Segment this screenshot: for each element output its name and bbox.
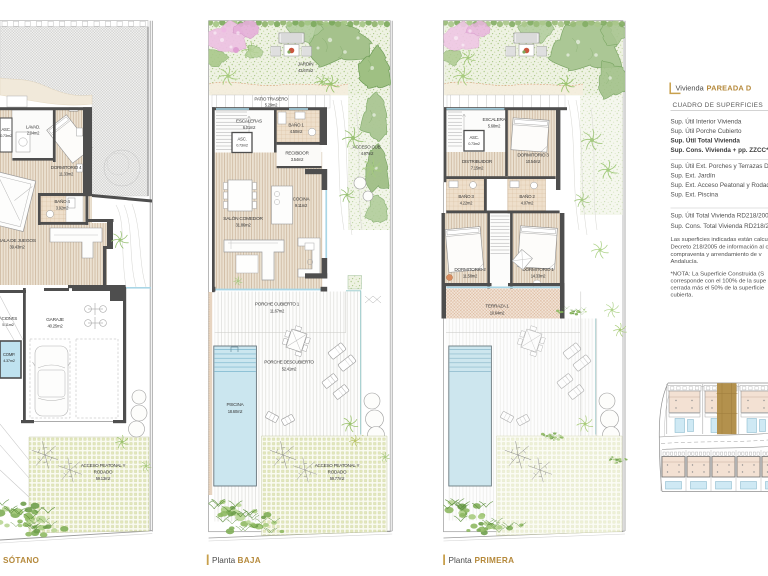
svg-text:2.04m2: 2.04m2: [27, 131, 40, 136]
svg-text:PORCHE DESCUBIERTO: PORCHE DESCUBIERTO: [264, 360, 314, 365]
svg-text:10.54m2: 10.54m2: [526, 159, 541, 164]
svg-text:BAÑO 1: BAÑO 1: [288, 122, 304, 128]
svg-text:Sup. Cons. Total Vivienda RD21: Sup. Cons. Total Vivienda RD218/2005: [671, 223, 768, 230]
svg-text:ESCALERA: ESCALERA: [482, 117, 506, 122]
svg-text:Planta: Planta: [212, 556, 236, 565]
svg-text:PATIO TRASERO: PATIO TRASERO: [254, 96, 288, 101]
svg-text:9.11m2: 9.11m2: [295, 203, 308, 208]
svg-text:Sup. Ext. Jardín: Sup. Ext. Jardín: [671, 173, 716, 180]
svg-text:PRIMERA: PRIMERA: [475, 556, 515, 565]
svg-text:6.01m2: 6.01m2: [243, 125, 256, 130]
svg-text:43.67m2: 43.67m2: [298, 68, 314, 73]
svg-text:Sup. Útil Interior Vivienda: Sup. Útil Interior Vivienda: [671, 117, 742, 126]
svg-text:Sup. Útil Porche Cubierto: Sup. Útil Porche Cubierto: [671, 126, 743, 135]
svg-text:Sup. Cons. Vivienda + pp. ZZCC: Sup. Cons. Vivienda + pp. ZZCC*: [671, 147, 768, 154]
svg-text:DORMITORIO 3: DORMITORIO 3: [517, 153, 549, 158]
svg-text:ASC.: ASC.: [1, 127, 10, 132]
svg-text:cubierta.: cubierta.: [671, 293, 694, 299]
svg-text:7.15m2: 7.15m2: [471, 166, 484, 171]
svg-text:BAÑO 3: BAÑO 3: [458, 193, 474, 199]
svg-text:compraventa y arrendamient: compraventa y arrendamiento de v: [671, 252, 762, 258]
svg-text:5.68m2: 5.68m2: [488, 124, 501, 129]
svg-text:PORCHE CUBIERTO 1: PORCHE CUBIERTO 1: [255, 302, 300, 307]
svg-text:Sup. Útil Total Vivienda RD218: Sup. Útil Total Vivienda RD218/2005: [671, 211, 768, 220]
svg-text:ASC.: ASC.: [237, 137, 246, 142]
svg-text:4.50m2: 4.50m2: [290, 129, 303, 134]
svg-text:5.29m2: 5.29m2: [265, 102, 278, 107]
svg-text:PISCINA: PISCINA: [226, 402, 244, 407]
svg-text:3.92m2: 3.92m2: [56, 206, 69, 211]
svg-text:4.37m2: 4.37m2: [3, 358, 15, 363]
svg-text:COMP.: COMP.: [3, 352, 15, 357]
svg-text:cerrada más el 50% de la: cerrada más el 50% de la superficie: [671, 286, 765, 292]
svg-text:Las superficies indicadas está: Las superficies indicadas están calculad…: [671, 237, 768, 243]
svg-text:DORMITORIO 1: DORMITORIO 1: [522, 267, 554, 272]
svg-text:RODADO: RODADO: [328, 470, 347, 475]
svg-text:BAJA: BAJA: [238, 556, 262, 565]
svg-text:4.07m2: 4.07m2: [521, 201, 534, 206]
svg-text:ACCESO PEATONAL Y: ACCESO PEATONAL Y: [315, 463, 360, 468]
svg-text:0.73m2: 0.73m2: [236, 143, 248, 148]
svg-text:SALA DE JUEGOS: SALA DE JUEGOS: [0, 238, 36, 244]
svg-text:52.41m2: 52.41m2: [282, 367, 297, 372]
svg-text:Vivienda: Vivienda: [676, 84, 705, 93]
svg-text:GARAJE: GARAJE: [46, 317, 64, 323]
svg-text:Planta: Planta: [449, 556, 473, 565]
svg-text:Sup. Útil Ext. Porches y Terra: Sup. Útil Ext. Porches y Terrazas Descub…: [671, 161, 768, 170]
svg-text:31.86m2: 31.86m2: [236, 223, 252, 228]
svg-text:LAVAD.: LAVAD.: [26, 125, 40, 130]
svg-text:RODADO: RODADO: [94, 470, 113, 475]
svg-text:18.60m2: 18.60m2: [228, 409, 243, 414]
svg-text:14.33m2: 14.33m2: [531, 274, 546, 279]
svg-text:Andalucía.: Andalucía.: [671, 259, 699, 265]
svg-text:4.97m2: 4.97m2: [361, 151, 374, 156]
svg-text:DORMITORIO 2: DORMITORIO 2: [454, 267, 486, 272]
svg-text:11.67m2: 11.67m2: [270, 309, 285, 314]
svg-text:ACCESO PEATONAL Y: ACCESO PEATONAL Y: [81, 463, 126, 468]
svg-text:4.22m2: 4.22m2: [460, 201, 473, 206]
svg-text:ESCALERAS: ESCALERAS: [236, 119, 262, 124]
svg-text:PAREADA D: PAREADA D: [707, 84, 752, 93]
svg-text:BAÑO 4: BAÑO 4: [54, 198, 70, 204]
svg-text:*NOTA: La Superficie Co: *NOTA: La Superficie Construida (S: [671, 272, 765, 278]
svg-text:40.25m2: 40.25m2: [48, 324, 64, 329]
svg-text:Decreto 218/2005 de informació: Decreto 218/2005 de información al consu: [671, 244, 768, 250]
svg-text:11.58m2: 11.58m2: [463, 274, 478, 279]
svg-text:Sup. Ext. Piscina: Sup. Ext. Piscina: [671, 192, 719, 199]
svg-text:SALÓN COMEDOR: SALÓN COMEDOR: [223, 215, 263, 222]
svg-text:ASC.: ASC.: [469, 135, 478, 140]
svg-text:corresponde con el 100% de: corresponde con el 100% de la supe: [671, 279, 767, 285]
svg-text:JARDÍN: JARDÍN: [298, 61, 315, 68]
svg-text:SÓTANO: SÓTANO: [3, 554, 40, 565]
svg-text:Sup. Útil Total Vivienda: Sup. Útil Total Vivienda: [671, 136, 741, 145]
svg-text:RECIBIDOR: RECIBIDOR: [285, 151, 309, 156]
svg-text:COCINA: COCINA: [293, 197, 311, 202]
svg-text:CUADRO DE SUPERFICIES: CUADRO DE SUPERFICIES: [673, 102, 764, 109]
svg-text:ACCESO CUB.: ACCESO CUB.: [353, 145, 382, 150]
svg-text:39.43m2: 39.43m2: [10, 245, 26, 250]
svg-text:10.64m2: 10.64m2: [490, 311, 505, 316]
svg-text:0.73m2: 0.73m2: [468, 141, 480, 146]
svg-text:59.13m2: 59.13m2: [96, 476, 111, 481]
svg-text:DORMITORIO 4: DORMITORIO 4: [51, 165, 82, 170]
svg-text:3.54m2: 3.54m2: [291, 157, 304, 162]
svg-text:59.77m2: 59.77m2: [330, 476, 345, 481]
svg-text:BAÑO 2: BAÑO 2: [519, 193, 535, 199]
svg-text:11.33m2: 11.33m2: [59, 172, 74, 177]
svg-text:0.73m2: 0.73m2: [0, 133, 13, 138]
svg-text:Sup. Ext. Acceso Peatonal y Ro: Sup. Ext. Acceso Peatonal y Rodado: [671, 182, 768, 189]
svg-text:DISTRIBUIDOR: DISTRIBUIDOR: [462, 159, 493, 164]
svg-text:TERRAZA 1: TERRAZA 1: [485, 304, 509, 309]
